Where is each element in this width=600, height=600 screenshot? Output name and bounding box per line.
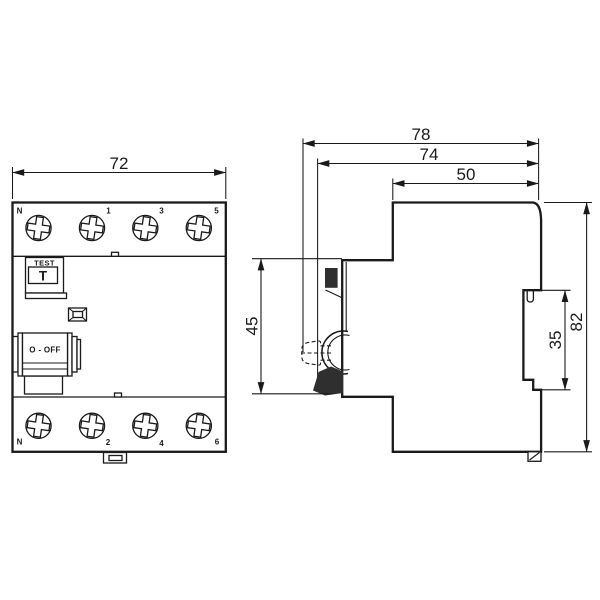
- terminal-label: 6: [215, 438, 220, 447]
- front-view: 72 N 1 3: [13, 154, 226, 463]
- dim-depth-body-label: 74: [420, 145, 439, 164]
- terminal-label: 2: [106, 438, 111, 447]
- terminal-label: N: [17, 207, 23, 216]
- dimension-width-72: 72: [13, 154, 226, 199]
- technical-drawing-canvas: 72 N 1 3: [0, 0, 600, 600]
- rail-slot-hook: [527, 290, 533, 302]
- dimension-height-82: 82: [544, 203, 592, 452]
- side-body-profile: [342, 203, 541, 452]
- switch-handle: [25, 376, 63, 394]
- dim-depth-top-label: 50: [457, 165, 476, 184]
- dimension-rail-slot-35: 35: [541, 290, 571, 390]
- dim-height-label: 82: [567, 313, 586, 332]
- switch-label: O - OFF: [29, 346, 60, 355]
- test-label: TEST: [34, 259, 55, 268]
- test-button-side: [325, 268, 338, 288]
- test-button: TEST T: [26, 258, 67, 299]
- terminal-label: 3: [159, 207, 164, 216]
- bottom-center-notch: [115, 393, 122, 397]
- side-view: 78 74 50: [243, 125, 593, 461]
- terminal-label: 5: [214, 207, 219, 216]
- terminal-label: 1: [106, 207, 111, 216]
- dimension-depth-50: 50: [393, 165, 539, 200]
- terminal-label: N: [17, 438, 23, 447]
- dim-depth-total-label: 78: [412, 125, 431, 144]
- top-center-notch: [112, 252, 119, 256]
- indicator-window: [69, 308, 87, 321]
- dim-width-label: 72: [110, 154, 129, 173]
- din-clip-side: [528, 452, 541, 462]
- dim-front-height-label: 45: [243, 317, 262, 336]
- rcd-dimensional-drawing: 72 N 1 3: [0, 0, 600, 600]
- switch-knob-dashed: [301, 341, 333, 365]
- din-clip-front: [104, 453, 127, 464]
- test-button-letter: T: [39, 269, 48, 284]
- terminal-label: 4: [159, 439, 164, 448]
- dim-rail-slot-label: 35: [546, 331, 565, 350]
